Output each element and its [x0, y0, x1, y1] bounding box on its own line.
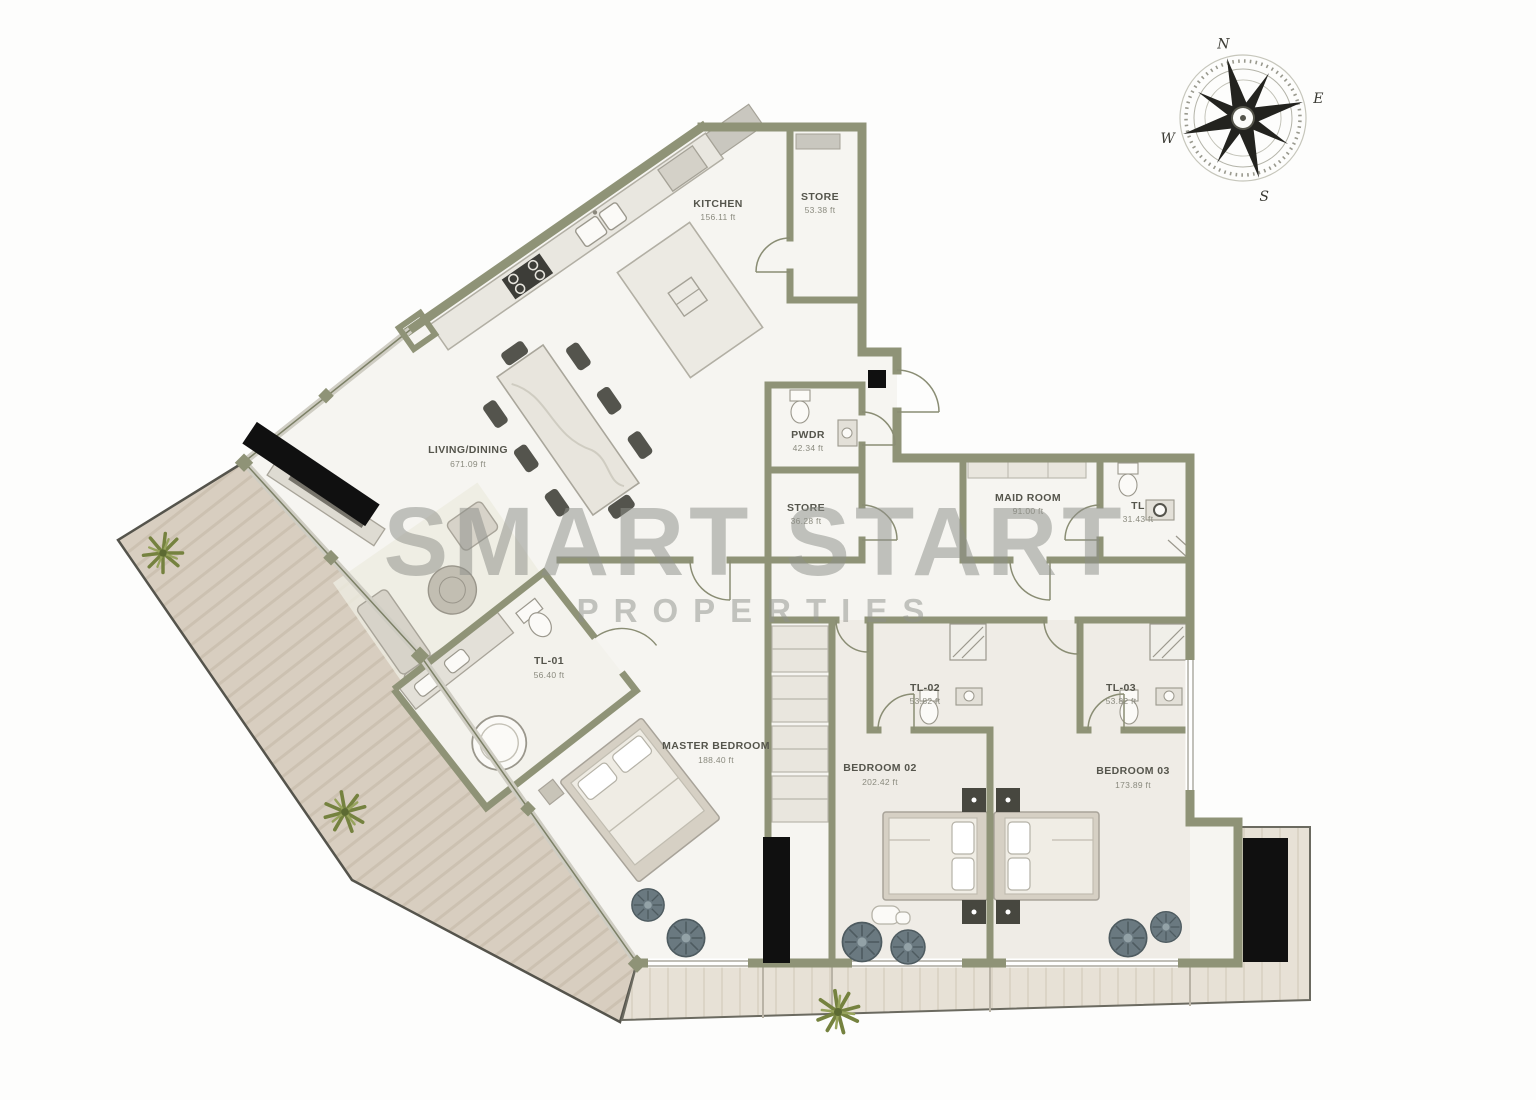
compass-east: E: [1312, 91, 1323, 107]
black-column-right: [1243, 838, 1288, 962]
pot-plant: [632, 889, 664, 921]
floor-plan-page: KITCHEN 156.11 ft STORE 53.38 ft LIVING/…: [0, 0, 1536, 1100]
label-store-top: STORE: [801, 191, 839, 203]
label-powder-room: PWDR: [791, 429, 825, 441]
black-column-entry: [868, 370, 886, 388]
area-toilet-03: 53.82 ft: [1106, 696, 1137, 706]
floor-plan-drawing: KITCHEN 156.11 ft STORE 53.38 ft LIVING/…: [0, 0, 1536, 1100]
area-toilet-02: 53.82 ft: [910, 696, 941, 706]
compass-north: N: [1216, 37, 1230, 53]
area-maid-toilet: 31.43 ft: [1123, 514, 1154, 524]
label-living-dining: LIVING/DINING: [428, 444, 508, 456]
pot-plant: [667, 919, 704, 956]
area-bedroom-02: 202.42 ft: [862, 777, 898, 787]
area-store-top: 53.38 ft: [805, 205, 836, 215]
label-toilet-03: TL-03: [1106, 682, 1136, 694]
area-master-bedroom: 188.40 ft: [698, 755, 734, 765]
area-kitchen: 156.11 ft: [700, 212, 735, 222]
label-maid-toilet: TL: [1131, 500, 1145, 512]
maid-wardrobe: [968, 462, 1086, 478]
label-toilet-01: TL-01: [534, 655, 564, 667]
watermark-brand: SMART START: [384, 487, 1127, 596]
compass-west: W: [1160, 131, 1176, 147]
pot-plant: [1151, 912, 1182, 943]
label-bedroom-02: BEDROOM 02: [843, 762, 916, 774]
compass-south: S: [1259, 189, 1269, 205]
pot-plant: [891, 930, 925, 964]
label-toilet-02: TL-02: [910, 682, 940, 694]
area-living-dining: 671.09 ft: [450, 459, 486, 469]
label-master-bedroom: MASTER BEDROOM: [662, 740, 770, 752]
area-powder-room: 42.34 ft: [793, 443, 824, 453]
label-kitchen: KITCHEN: [693, 198, 742, 210]
black-column-left: [763, 837, 790, 963]
pot-plant: [1109, 919, 1146, 956]
terrace-plant-1: [143, 533, 182, 572]
compass-rose: N E S W: [1137, 13, 1349, 228]
area-bedroom-03: 173.89 ft: [1115, 780, 1151, 790]
store-shelf: [796, 134, 840, 149]
watermark-sub: PROPERTIES: [577, 592, 940, 629]
pot-plant: [842, 922, 881, 961]
area-toilet-01: 56.40 ft: [534, 670, 565, 680]
label-bedroom-03: BEDROOM 03: [1096, 765, 1169, 777]
